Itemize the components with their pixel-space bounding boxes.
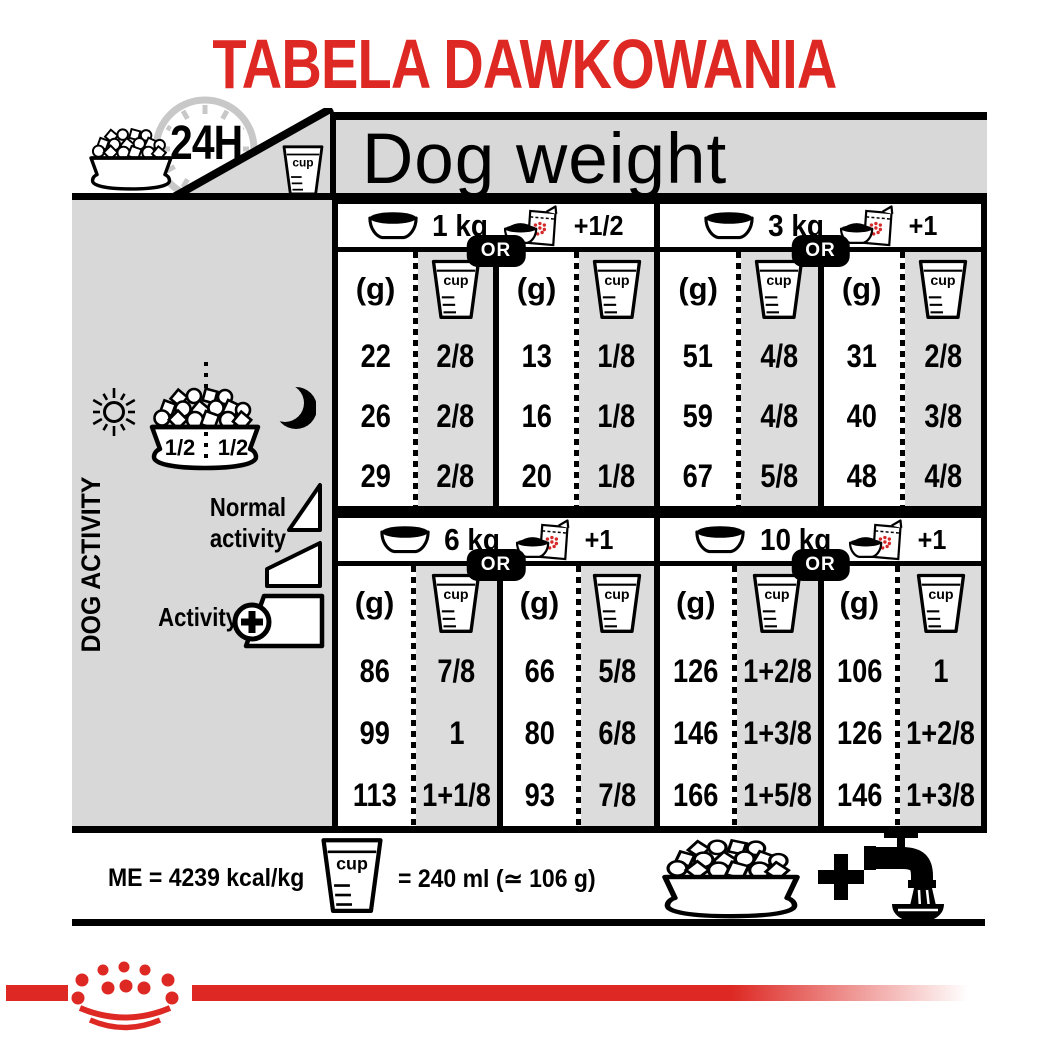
cup-value: 5/8 bbox=[599, 653, 637, 690]
or-badge: OR bbox=[467, 235, 526, 267]
grams-value: 126 bbox=[837, 715, 882, 752]
grams-header: (g) bbox=[678, 271, 718, 307]
grams-value: 113 bbox=[353, 777, 397, 814]
cup-value: 2/8 bbox=[437, 398, 475, 435]
kibble-bowl-icon bbox=[650, 834, 812, 920]
grams-value: 29 bbox=[360, 458, 390, 495]
cup-value: 1/8 bbox=[598, 458, 636, 495]
grams-value: 22 bbox=[360, 338, 390, 375]
svg-text:cup: cup bbox=[764, 587, 790, 603]
section-body: (g) 126 146 166 cup 1+2/8 1+3/8 1+5/8 (g… bbox=[660, 566, 981, 826]
weight-section-6kg: 6 kg +1 OR (g) 86 99 113 cup 7/8 1 1+1/8… bbox=[332, 512, 660, 832]
cup-column-dry: cup 2/8 2/8 2/8 bbox=[418, 252, 493, 506]
cup-column-mixed: cup 2/8 3/8 4/8 bbox=[905, 252, 981, 506]
svg-text:cup: cup bbox=[604, 273, 630, 289]
grams-value: 13 bbox=[521, 338, 551, 375]
cup-value: 1+2/8 bbox=[906, 715, 975, 752]
cup-equivalence-label: = 240 ml (≃ 106 g) bbox=[398, 864, 596, 894]
cup-value: 5/8 bbox=[760, 458, 798, 495]
svg-text:cup: cup bbox=[336, 854, 368, 874]
activity-ramp-small-icon bbox=[286, 482, 324, 534]
cup-value: 6/8 bbox=[599, 715, 637, 752]
grams-header: (g) bbox=[842, 271, 882, 307]
grams-header: (g) bbox=[356, 271, 396, 307]
measuring-cup-icon: cup bbox=[918, 257, 968, 321]
section-body: (g) 22 26 29 cup 2/8 2/8 2/8 (g) 13 16 2… bbox=[338, 252, 654, 506]
cup-value: 4/8 bbox=[760, 338, 798, 375]
cup-value: 1+3/8 bbox=[743, 715, 812, 752]
cup-column-dry: cup 1+2/8 1+3/8 1+5/8 bbox=[737, 566, 818, 826]
dry-bowl-icon bbox=[366, 210, 420, 242]
measuring-cup-icon: cup bbox=[316, 836, 388, 914]
measuring-cup-icon: cup bbox=[592, 257, 642, 321]
cup-value: 1/8 bbox=[598, 338, 636, 375]
half-split-bowl-icon: 1/2 1/2 bbox=[132, 360, 278, 478]
grams-value: 166 bbox=[673, 777, 718, 814]
cup-column-mixed: cup 1/8 1/8 1/8 bbox=[579, 252, 654, 506]
cup-value: 2/8 bbox=[437, 458, 475, 495]
feeding-guide-page: TABELA DAWKOWANIA 24H cup Dog weight bbox=[0, 0, 1049, 1049]
metabolizable-energy-label: ME = 4239 kcal/kg bbox=[108, 864, 304, 893]
cup-value: 1+3/8 bbox=[906, 777, 975, 814]
or-badge: OR bbox=[791, 235, 850, 267]
weight-header: 10 kg +1 OR bbox=[660, 518, 981, 566]
grams-header: (g) bbox=[676, 585, 716, 621]
grams-header: (g) bbox=[355, 585, 395, 621]
brand-line-right bbox=[192, 985, 984, 1001]
grams-value: 146 bbox=[837, 777, 882, 814]
grams-value: 67 bbox=[683, 458, 713, 495]
svg-text:cup: cup bbox=[930, 273, 956, 289]
svg-text:cup: cup bbox=[444, 587, 470, 603]
weight-section-1kg: 1 kg +1/2 OR (g) 22 26 29 cup 2/8 2/8 2/… bbox=[332, 198, 660, 512]
svg-text:cup: cup bbox=[292, 155, 313, 169]
grams-value: 106 bbox=[837, 653, 882, 690]
cup-value: 1/8 bbox=[598, 398, 636, 435]
water-tap-icon bbox=[858, 828, 946, 922]
cup-value: 4/8 bbox=[924, 458, 962, 495]
royal-canin-crown-icon bbox=[66, 948, 194, 1036]
grams-value: 59 bbox=[683, 398, 713, 435]
grams-value: 31 bbox=[846, 338, 876, 375]
grams-value: 126 bbox=[673, 653, 718, 690]
grams-value: 20 bbox=[521, 458, 551, 495]
dog-weight-header: Dog weight bbox=[330, 112, 987, 198]
measuring-cup-icon: cup bbox=[754, 257, 804, 321]
dog-activity-label: DOG ACTIVITY bbox=[76, 476, 112, 653]
grams-value: 51 bbox=[683, 338, 713, 375]
cup-value: 1+5/8 bbox=[743, 777, 812, 814]
footer-bottom-line bbox=[72, 919, 985, 926]
activity-ramp-medium-icon bbox=[264, 540, 324, 590]
wet-pouch-bowl-icon bbox=[845, 519, 907, 565]
svg-text:1/2: 1/2 bbox=[218, 435, 249, 460]
grams-header: (g) bbox=[520, 585, 560, 621]
grams-value: 26 bbox=[360, 398, 390, 435]
grams-column-dry: (g) 22 26 29 bbox=[338, 252, 413, 506]
svg-text:cup: cup bbox=[605, 587, 631, 603]
cup-value: 4/8 bbox=[760, 398, 798, 435]
grams-column-mixed: (g) 66 80 93 bbox=[503, 566, 576, 826]
grams-header: (g) bbox=[839, 585, 879, 621]
cup-value: 7/8 bbox=[599, 777, 637, 814]
cup-column-mixed: cup 5/8 6/8 7/8 bbox=[581, 566, 654, 826]
grams-value: 146 bbox=[673, 715, 718, 752]
brand-line-left bbox=[6, 985, 68, 1001]
dry-bowl-icon bbox=[693, 524, 747, 556]
moon-icon bbox=[274, 384, 316, 432]
grams-value: 99 bbox=[359, 715, 389, 752]
wet-extra-label: +1 bbox=[917, 524, 946, 556]
weight-section-10kg: 10 kg +1 OR (g) 126 146 166 cup 1+2/8 1+… bbox=[654, 512, 987, 832]
grams-value: 16 bbox=[521, 398, 551, 435]
dog-weight-label: Dog weight bbox=[362, 119, 727, 200]
cup-value: 7/8 bbox=[438, 653, 476, 690]
kibble-bowl-icon bbox=[82, 112, 180, 204]
or-badge: OR bbox=[791, 549, 850, 581]
grams-column-mixed: (g) 13 16 20 bbox=[499, 252, 574, 506]
wet-extra-label: +1/2 bbox=[574, 210, 624, 242]
weight-header: 3 kg +1 OR bbox=[660, 204, 981, 252]
section-body: (g) 86 99 113 cup 7/8 1 1+1/8 (g) 66 80 … bbox=[338, 566, 654, 826]
or-badge: OR bbox=[467, 549, 526, 581]
grams-column-dry: (g) 51 59 67 bbox=[660, 252, 736, 506]
cup-column-dry: cup 7/8 1 1+1/8 bbox=[416, 566, 497, 826]
measuring-cup-icon: cup bbox=[592, 571, 642, 635]
svg-text:1/2: 1/2 bbox=[165, 435, 196, 460]
footer-top-line bbox=[72, 826, 987, 833]
grams-header: (g) bbox=[517, 271, 557, 307]
measuring-cup-icon: cup bbox=[280, 144, 326, 196]
wet-extra-label: +1 bbox=[909, 210, 938, 242]
dry-bowl-icon bbox=[702, 210, 756, 242]
grams-column-dry: (g) 86 99 113 bbox=[338, 566, 411, 826]
section-body: (g) 51 59 67 cup 4/8 4/8 5/8 (g) 31 40 4… bbox=[660, 252, 981, 506]
cup-value: 2/8 bbox=[437, 338, 475, 375]
measuring-cup-icon: cup bbox=[752, 571, 802, 635]
weight-header: 1 kg +1/2 OR bbox=[338, 204, 654, 252]
measuring-cup-icon: cup bbox=[431, 257, 481, 321]
svg-text:cup: cup bbox=[767, 273, 793, 289]
grams-column-dry: (g) 126 146 166 bbox=[660, 566, 732, 826]
grams-value: 80 bbox=[524, 715, 554, 752]
weight-section-3kg: 3 kg +1 OR (g) 51 59 67 cup 4/8 4/8 5/8 … bbox=[654, 198, 987, 512]
plus-circle-icon bbox=[230, 600, 274, 644]
grams-value: 66 bbox=[524, 653, 554, 690]
cup-value: 1 bbox=[933, 653, 948, 690]
grams-column-mixed: (g) 106 126 146 bbox=[824, 566, 896, 826]
cup-value: 1+2/8 bbox=[743, 653, 812, 690]
cup-column-dry: cup 4/8 4/8 5/8 bbox=[741, 252, 817, 506]
measuring-cup-icon: cup bbox=[916, 571, 966, 635]
dry-bowl-icon bbox=[378, 524, 432, 556]
grams-value: 86 bbox=[359, 653, 389, 690]
cup-value: 2/8 bbox=[924, 338, 962, 375]
grams-value: 48 bbox=[846, 458, 876, 495]
svg-text:cup: cup bbox=[928, 587, 954, 603]
grams-column-mixed: (g) 31 40 48 bbox=[824, 252, 900, 506]
cup-value: 3/8 bbox=[924, 398, 962, 435]
weight-header: 6 kg +1 OR bbox=[338, 518, 654, 566]
grams-value: 40 bbox=[846, 398, 876, 435]
svg-text:cup: cup bbox=[443, 273, 469, 289]
wet-extra-label: +1 bbox=[584, 524, 613, 556]
cup-value: 1+1/8 bbox=[422, 777, 491, 814]
cup-column-mixed: cup 1 1+2/8 1+3/8 bbox=[900, 566, 981, 826]
cup-value: 1 bbox=[449, 715, 464, 752]
activity-label: Activity bbox=[143, 602, 238, 633]
grams-value: 93 bbox=[524, 777, 554, 814]
